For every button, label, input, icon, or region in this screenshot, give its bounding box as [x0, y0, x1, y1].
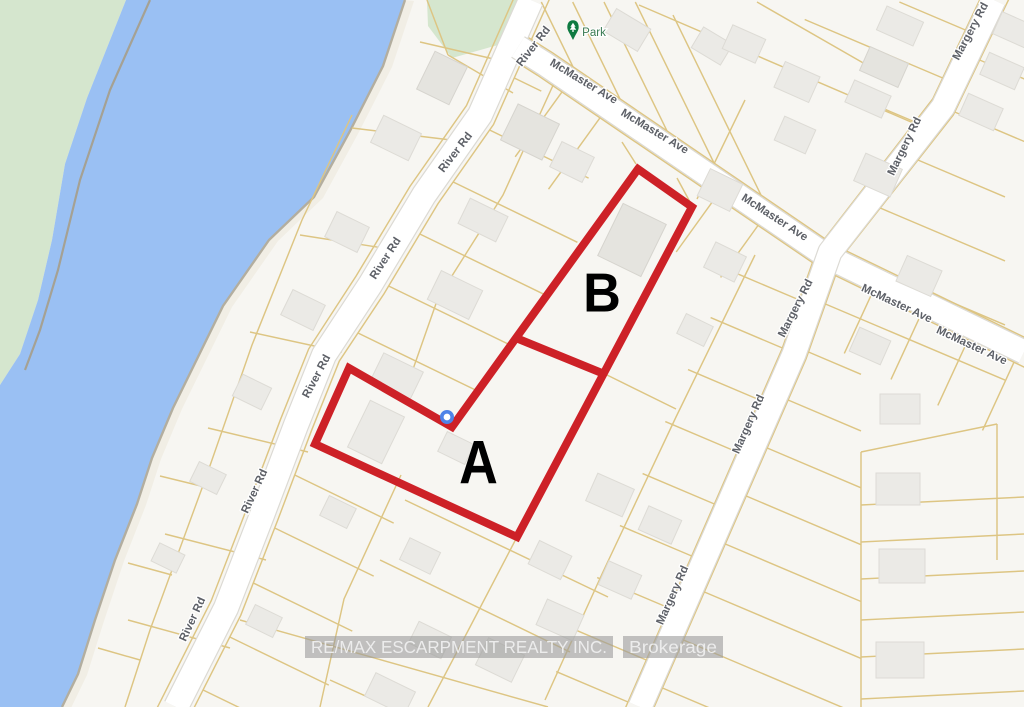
svg-text:Park: Park	[582, 27, 606, 39]
svg-text:Brokerage: Brokerage	[629, 637, 717, 657]
svg-text:RE/MAX ESCARPMENT REALTY INC.: RE/MAX ESCARPMENT REALTY INC.	[311, 637, 607, 657]
svg-text:A: A	[459, 430, 498, 498]
svg-text:B: B	[583, 262, 621, 324]
